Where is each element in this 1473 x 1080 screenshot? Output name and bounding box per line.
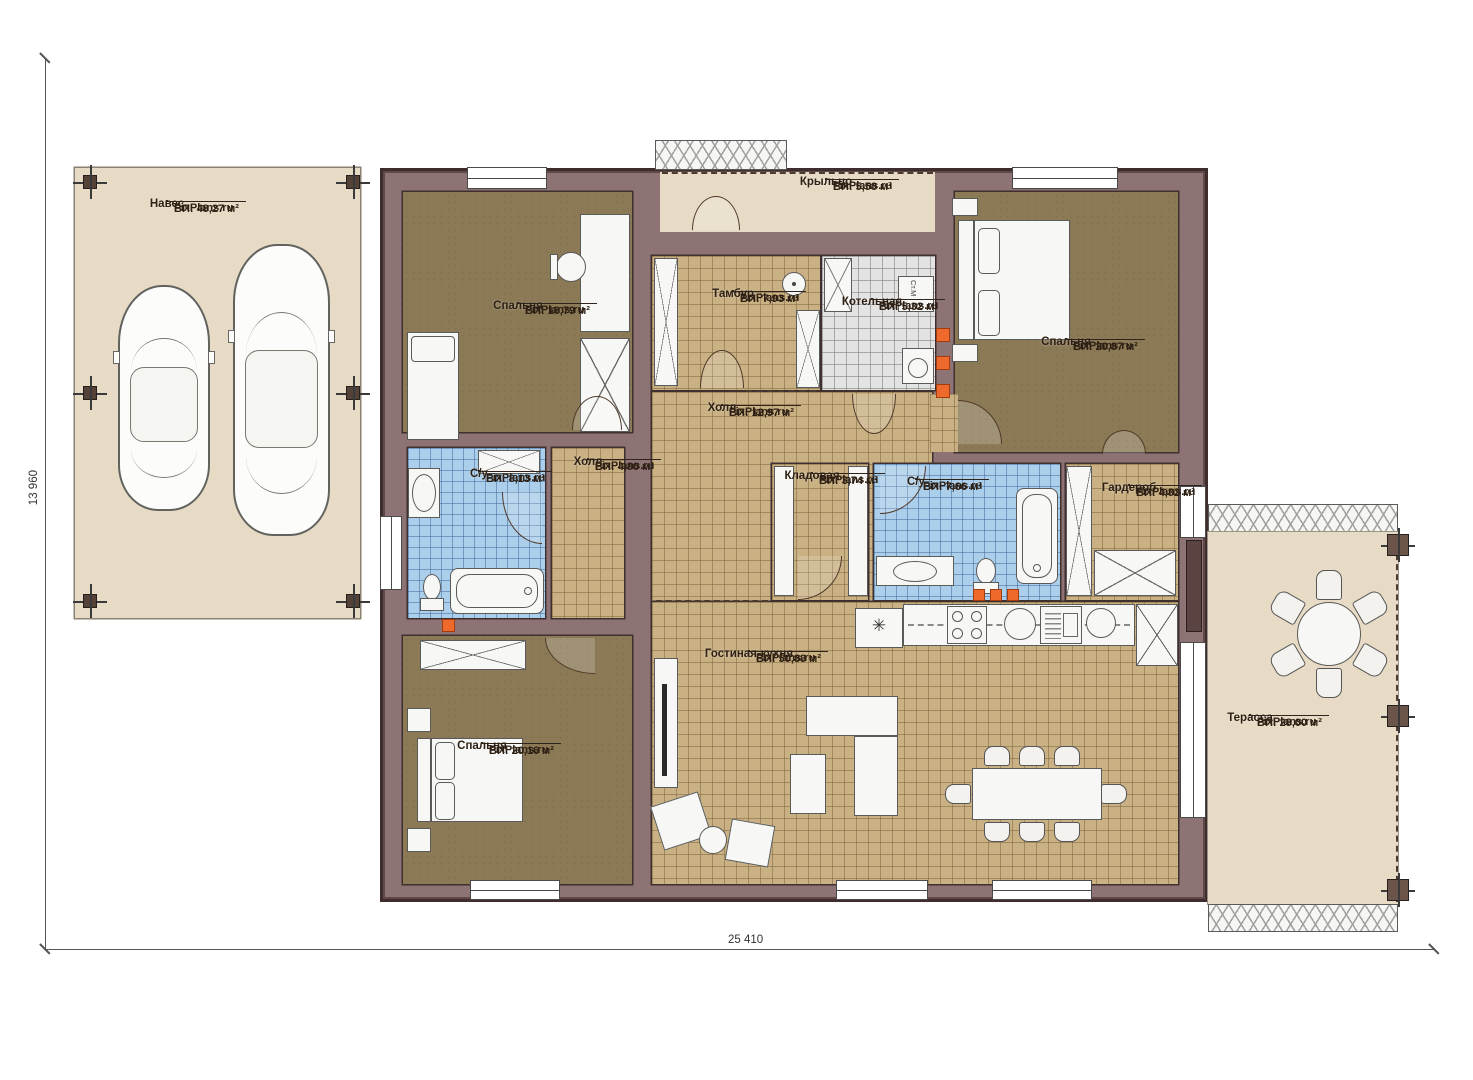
washing-machine-label: Ст.М [909,280,918,296]
sofa-icon [854,736,898,816]
room-info-box: FixPlans.ru ВП: 28,00 м² [1249,714,1251,716]
column-post-icon [77,169,103,195]
area-label: ВП: 20,16 м² [482,743,561,758]
bed-pillow [411,336,455,362]
dining-table-icon [972,768,1102,820]
dishwasher-door [1063,613,1078,637]
wardrobe-icon [420,640,526,670]
kitchen-sink-icon [1004,608,1036,640]
area-label: ВП: 5,32 м² [872,299,945,314]
car-mirror [208,351,215,364]
room-info-box: FixPlans.ru ВП: 48,27 м² [166,200,168,202]
hall-connector-floor [930,394,958,452]
terrace-post-icon [1385,877,1411,903]
stove-burner [952,611,963,622]
area-label: ВП: 4,82 м² [1129,485,1202,500]
car-windshield [246,312,317,355]
column-post-icon [77,588,103,614]
opening-dashed-line [656,600,768,602]
terrace-glass-door [1180,642,1206,818]
terrace-beam [1208,504,1398,532]
column-post-icon [340,588,366,614]
car-icon [233,244,330,536]
window [1012,167,1118,189]
area-label: ВП: 18,79 м² [518,303,597,318]
terrace-beam [1208,904,1398,932]
chair-icon [945,784,971,804]
car-rear-window [246,456,317,493]
coffee-table-icon [790,754,826,814]
dimension-label-height: 13 960 [28,470,40,505]
area-label: ВП: 5,58 м² [826,179,899,194]
room-info-box: FixPlans.ru ВП: 7,93 м² [732,290,734,292]
outlet-icon [936,328,950,342]
car-roof [245,350,318,448]
outlet-icon [442,619,455,632]
outlet-icon [990,589,1002,601]
room-info-box: FixPlans.ru ВП: 20,16 м² [481,742,483,744]
stove-burner [952,628,963,639]
shelf-icon [774,466,794,596]
area-label: ВП: 7,66 м² [916,479,989,494]
bed-pillow [435,782,455,820]
column-post-icon [77,380,103,406]
room-info-box: FixPlans.ru ВП: 5,32 м² [871,298,873,300]
room-info-box: FixPlans.ru ВП: 50,88 м² [748,650,750,652]
sofa-icon [806,696,898,736]
tv-icon [662,684,667,776]
bed-pillow [978,228,1000,274]
nightstand-icon [952,198,978,216]
dishwasher-vents [1045,613,1061,639]
dimension-label-width: 25 410 [728,934,763,946]
area-label: ВП: 20,87 м² [1066,339,1145,354]
outlet-icon [936,384,950,398]
window [467,167,547,189]
window [836,880,928,900]
dimension-line-horizontal [45,949,1434,950]
window [380,516,402,590]
wardrobe-icon [1066,466,1092,596]
sliding-panel [1186,540,1202,632]
stove-burner [971,611,982,622]
bed-headboard [417,738,431,822]
area-label: ВП: 4,80 м² [588,459,661,474]
window [470,880,560,900]
column-post-icon [340,380,366,406]
wardrobe-icon [1094,550,1176,596]
office-chair-back [550,254,558,280]
armchair-icon [725,818,776,867]
outlet-icon [973,589,985,601]
floor-plan: 13 960 25 410 [0,0,1473,1080]
sink-icon [412,474,436,512]
chair-icon [1054,822,1080,842]
porch-roof-dashed-line [662,172,933,174]
toilet-tank [420,598,444,611]
area-label: ВП: 48,27 м² [167,201,246,216]
area-label: ВП: 7,93 м² [733,291,806,306]
area-label: ВП: 3,74 м² [812,473,885,488]
outlet-icon [936,356,950,370]
car-mirror [328,330,335,343]
chair-icon [1101,784,1127,804]
room-info-box: FixPlans.ru ВП: 7,66 м² [915,478,917,480]
stove-icon [947,606,987,644]
fridge-icon: ✳ [855,608,903,648]
chair-icon [1316,570,1342,600]
chair-icon [1019,822,1045,842]
car-icon [118,285,210,511]
toilet-icon [976,558,996,584]
area-label: ВП: 28,00 м² [1250,715,1329,730]
terrace-post-icon [1385,703,1411,729]
room-info-box: FixPlans.ru ВП: 18,79 м² [517,302,519,304]
nightstand-icon [407,828,431,852]
room-info-box: FixPlans.ru ВП: 3,74 м² [811,472,813,474]
porch-canopy-beam [655,140,787,170]
area-label: ВП: 50,88 м² [749,651,828,666]
car-mirror [113,351,120,364]
fridge-symbol: ✳ [856,616,902,636]
outlet-icon [1007,589,1019,601]
chair-icon [1054,746,1080,766]
column-post-icon [340,169,366,195]
room-info-box: FixPlans.ru ВП: 8,13 м² [478,470,480,472]
bed-headboard [958,220,974,340]
chair-icon [984,746,1010,766]
dimension-line-vertical [45,58,46,949]
chair-icon [984,822,1010,842]
room-info-box: FixPlans.ru ВП: 4,80 м² [587,458,589,460]
ceiling-light-dot [792,282,796,286]
wardrobe-icon [654,258,678,386]
car-mirror [228,330,235,343]
office-chair-icon [556,252,586,282]
opening-dashed-line [746,390,816,392]
chair-icon [1019,746,1045,766]
room-info-box: FixPlans.ru ВП: 20,87 м² [1065,338,1067,340]
chair-icon [1316,668,1342,698]
stove-burner [971,628,982,639]
terrace-post-icon [1385,532,1411,558]
bed-pillow [978,290,1000,336]
toilet-icon [423,574,441,600]
car-rear-window [131,449,197,478]
bathtub-drain [524,587,532,595]
boiler-dial [908,358,928,378]
oven-icon [1086,608,1116,638]
bed-pillow [435,742,455,780]
dishwasher-icon [1040,606,1082,644]
terrace-table-icon [1297,602,1361,666]
sink-icon [893,561,937,582]
area-label: ВП: 8,13 м² [479,471,552,486]
room-info-box: FixPlans.ru ВП: 12,97 м² [721,404,723,406]
nightstand-icon [952,344,978,362]
bathtub-drain [1033,564,1041,572]
room-info-box: FixPlans.ru ВП: 4,82 м² [1128,484,1130,486]
area-label: ВП: 12,97 м² [722,405,801,420]
wardrobe-icon [796,310,820,388]
side-table-icon [699,826,727,854]
nightstand-icon [407,708,431,732]
window [992,880,1092,900]
car-roof [130,367,198,443]
room-info-box: FixPlans.ru ВП: 5,58 м² [825,178,827,180]
kitchen-cabinet-icon [1136,604,1178,666]
